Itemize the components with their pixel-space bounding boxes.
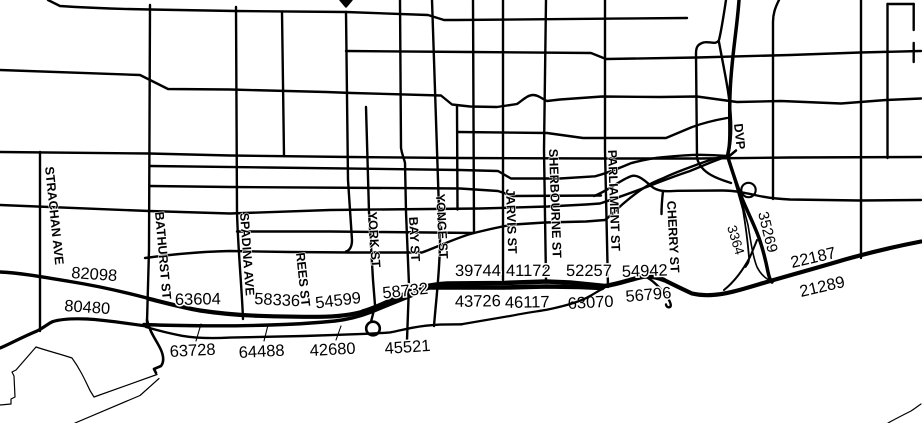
svg-text:80480: 80480 bbox=[64, 297, 111, 318]
svg-text:JARVIS ST: JARVIS ST bbox=[503, 189, 519, 255]
svg-text:41172: 41172 bbox=[506, 262, 551, 280]
svg-text:BAY ST: BAY ST bbox=[406, 216, 422, 262]
svg-text:63728: 63728 bbox=[169, 341, 216, 361]
svg-text:52257: 52257 bbox=[566, 262, 612, 280]
svg-text:82098: 82098 bbox=[71, 264, 118, 285]
svg-text:54942: 54942 bbox=[622, 261, 668, 281]
svg-text:64488: 64488 bbox=[238, 342, 285, 362]
svg-text:DVP: DVP bbox=[731, 123, 748, 150]
svg-text:46117: 46117 bbox=[505, 293, 550, 312]
svg-text:39744: 39744 bbox=[455, 262, 501, 280]
svg-text:43726: 43726 bbox=[455, 292, 501, 311]
svg-text:42680: 42680 bbox=[309, 340, 356, 360]
svg-text:58336: 58336 bbox=[254, 290, 301, 310]
svg-text:63604: 63604 bbox=[175, 290, 221, 309]
svg-text:45521: 45521 bbox=[384, 337, 431, 358]
